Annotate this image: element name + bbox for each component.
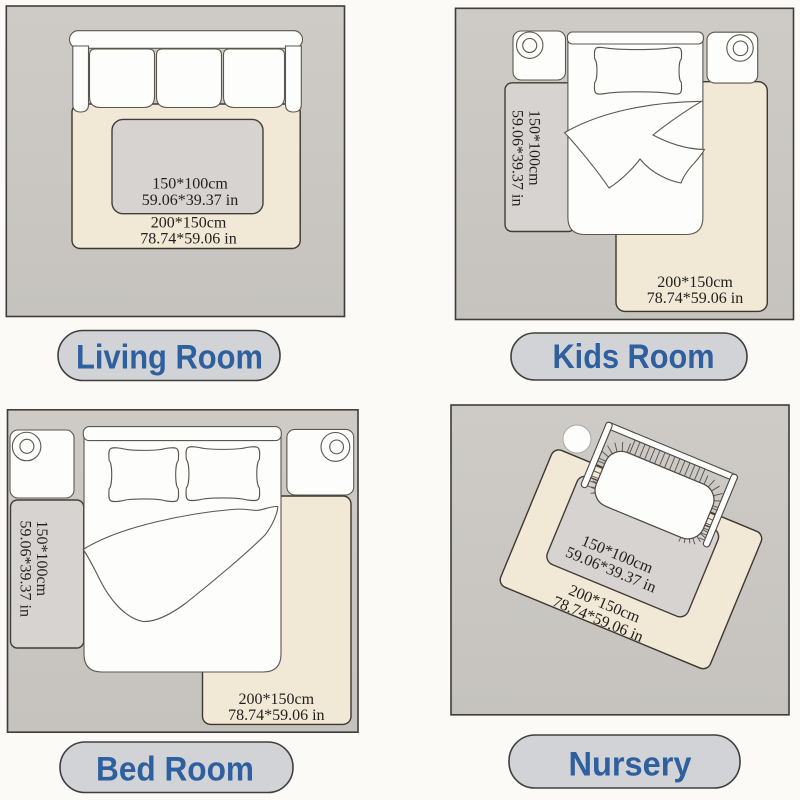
svg-text:200*150cm: 200*150cm [151, 215, 227, 232]
svg-text:59.06*39.37 in: 59.06*39.37 in [509, 110, 526, 206]
svg-text:Nursery: Nursery [569, 746, 692, 784]
svg-text:150*100cm: 150*100cm [526, 110, 543, 186]
svg-text:78.74*59.06 in: 78.74*59.06 in [647, 290, 743, 307]
svg-text:150*100cm: 150*100cm [152, 176, 228, 193]
svg-text:150*100cm: 150*100cm [33, 521, 50, 597]
svg-text:78.74*59.06 in: 78.74*59.06 in [140, 231, 236, 248]
svg-text:78.74*59.06 in: 78.74*59.06 in [228, 707, 324, 724]
svg-text:Living Room: Living Room [76, 339, 263, 377]
svg-text:200*150cm: 200*150cm [657, 274, 733, 291]
svg-text:59.06*39.37 in: 59.06*39.37 in [142, 192, 238, 209]
svg-text:Kids Room: Kids Room [553, 338, 715, 376]
svg-text:Bed Room: Bed Room [96, 751, 254, 789]
svg-text:59.06*39.37 in: 59.06*39.37 in [17, 521, 34, 617]
svg-text:200*150cm: 200*150cm [239, 691, 315, 708]
